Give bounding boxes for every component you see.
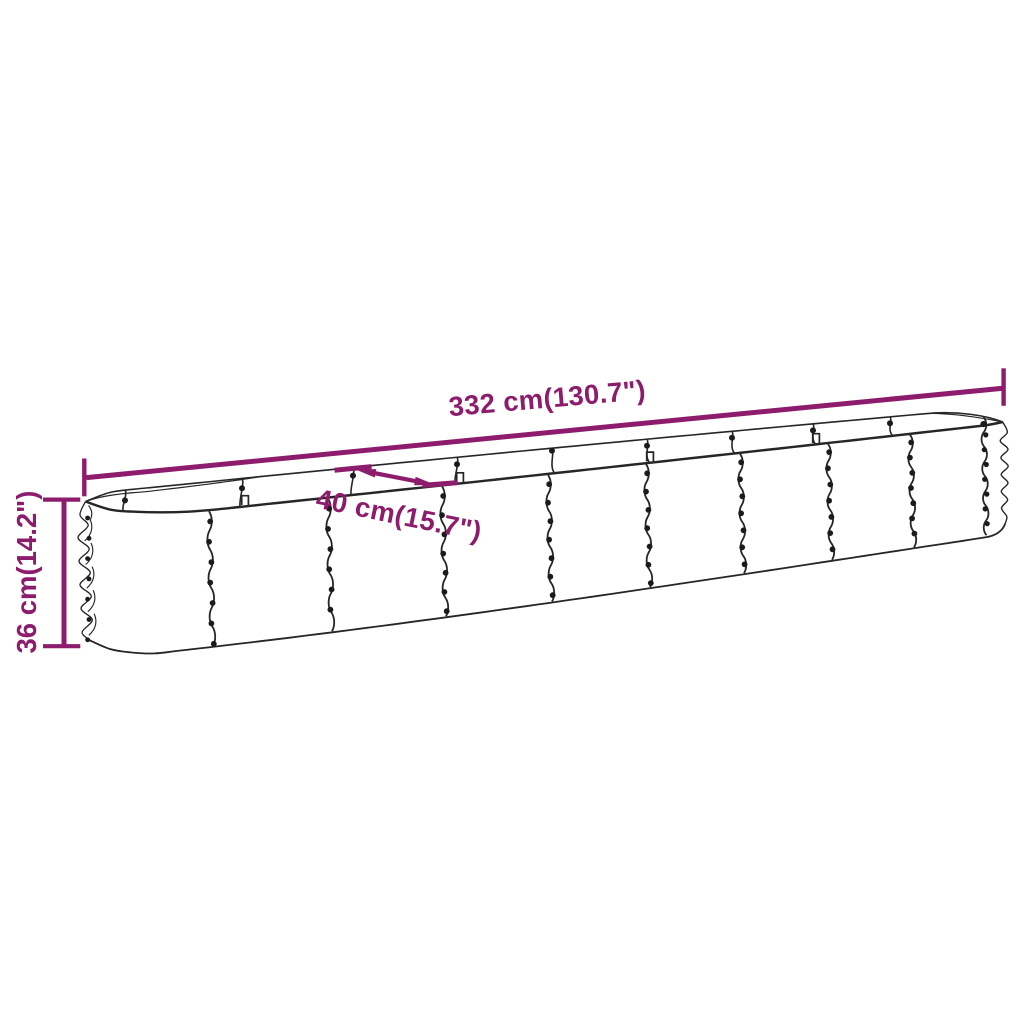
svg-text:332 cm(130.7"): 332 cm(130.7") xyxy=(447,374,647,422)
svg-text:36 cm(14.2"): 36 cm(14.2") xyxy=(11,491,42,654)
svg-text:40 cm(15.7"): 40 cm(15.7") xyxy=(314,483,485,547)
